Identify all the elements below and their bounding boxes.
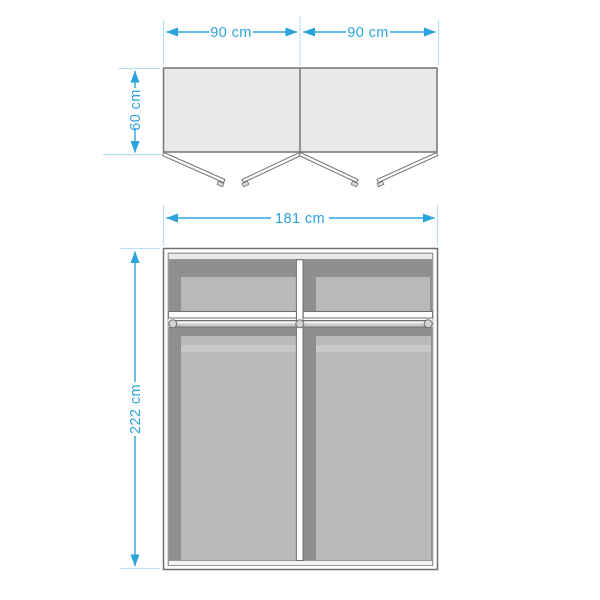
- shelf-left: [168, 312, 296, 319]
- front-view: 181 cm 222 cm: [120, 205, 438, 570]
- dimension-label-height: 222 cm: [128, 384, 144, 434]
- door-panel-3: [299, 153, 358, 183]
- lower-compartment-left-back-panel: [181, 336, 296, 561]
- dimension-total-width: 181 cm: [167, 211, 435, 227]
- door-panel-4: [377, 153, 438, 183]
- dimension-label-total-width: 181 cm: [275, 211, 325, 227]
- top-panel-strip: [168, 253, 432, 259]
- top-view-door-handles: [217, 181, 384, 187]
- shelf-right: [303, 312, 432, 319]
- wardrobe-dimension-diagram: 90 cm 90 cm 60 cm: [0, 0, 600, 600]
- dimension-depth: 60 cm: [128, 71, 144, 153]
- dimension-height: 222 cm: [128, 252, 144, 567]
- center-divider-panel: [296, 260, 303, 561]
- lower-right-highlight-strip: [316, 345, 431, 352]
- dimension-width-right: 90 cm: [304, 25, 436, 41]
- dimension-label-width-right: 90 cm: [347, 25, 389, 41]
- dimension-label-width-left: 90 cm: [210, 25, 252, 41]
- dimension-label-depth: 60 cm: [128, 89, 144, 131]
- top-view: 90 cm 90 cm 60 cm: [103, 16, 439, 187]
- top-view-open-doors: [163, 153, 438, 183]
- dimension-width-left: 90 cm: [167, 25, 298, 41]
- bottom-panel-strip: [168, 561, 432, 566]
- upper-compartment-right-back-panel: [316, 277, 430, 312]
- rail-bracket-center: [296, 320, 304, 328]
- door-panel-2: [242, 153, 301, 183]
- diagram-svg: 90 cm 90 cm 60 cm: [0, 0, 600, 600]
- clothes-rail: [169, 320, 432, 328]
- upper-compartment-left-back-panel: [181, 277, 296, 312]
- lower-left-highlight-strip: [181, 345, 296, 352]
- lower-compartment-right-back-panel: [316, 336, 431, 561]
- door-panel-1: [163, 153, 225, 183]
- rail-bracket-right: [424, 320, 432, 328]
- rail-bracket-left: [169, 320, 177, 328]
